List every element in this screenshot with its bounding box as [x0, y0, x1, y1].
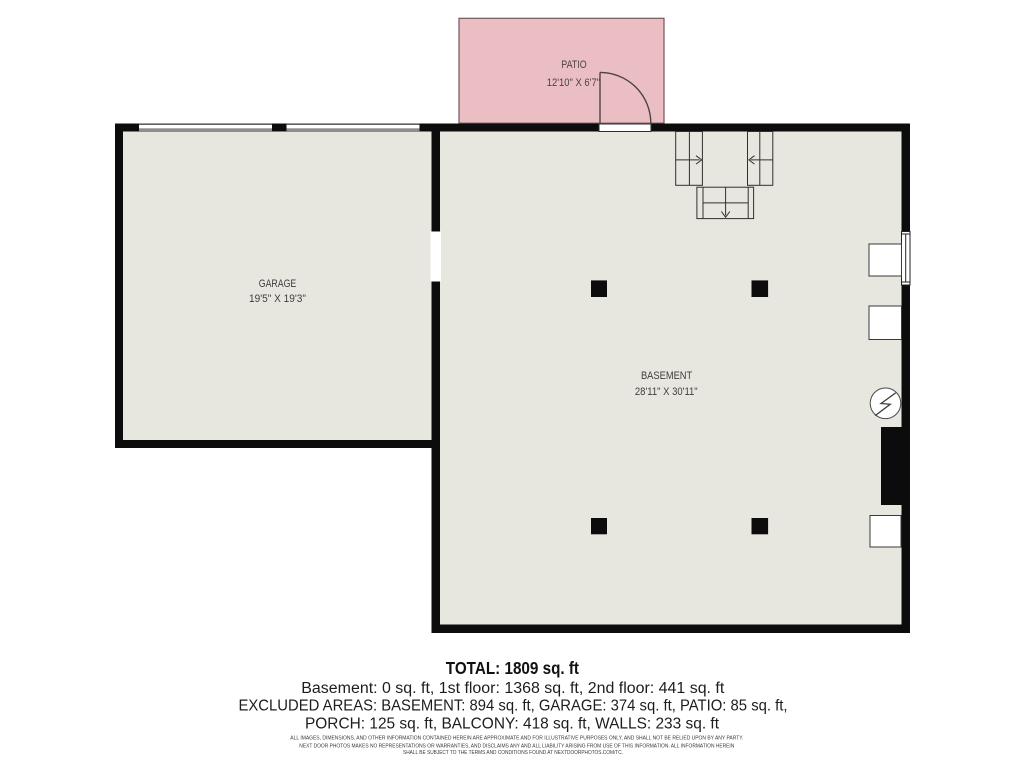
svg-text:Basement: 0 sq. ft, 1st floor:: Basement: 0 sq. ft, 1st floor: 1368 sq. … [301, 680, 725, 697]
svg-text:19'5" X 19'3": 19'5" X 19'3" [249, 293, 306, 305]
svg-text:PATIO: PATIO [561, 59, 587, 71]
svg-text:TOTAL: 1809 sq. ft: TOTAL: 1809 sq. ft [446, 658, 579, 678]
svg-text:ALL IMAGES, DIMENSIONS, AND OT: ALL IMAGES, DIMENSIONS, AND OTHER INFORM… [290, 736, 743, 742]
svg-text:EXCLUDED AREAS: BASEMENT: 894: EXCLUDED AREAS: BASEMENT: 894 sq. ft, GA… [239, 698, 788, 715]
svg-text:SHALL BE SUBJECT TO THE TERMS: SHALL BE SUBJECT TO THE TERMS AND CONDIT… [403, 750, 623, 756]
svg-text:GARAGE: GARAGE [259, 278, 297, 290]
svg-text:28'11" X 30'11": 28'11" X 30'11" [635, 386, 698, 398]
svg-text:BASEMENT: BASEMENT [641, 370, 693, 382]
svg-text:12'10" X 6'7": 12'10" X 6'7" [547, 77, 600, 89]
svg-text:NEXT DOOR PHOTOS MAKES NO REPR: NEXT DOOR PHOTOS MAKES NO REPRESENTATION… [299, 743, 734, 749]
svg-text:PORCH: 125 sq. ft, BALCONY: 41: PORCH: 125 sq. ft, BALCONY: 418 sq. ft, … [305, 715, 720, 732]
